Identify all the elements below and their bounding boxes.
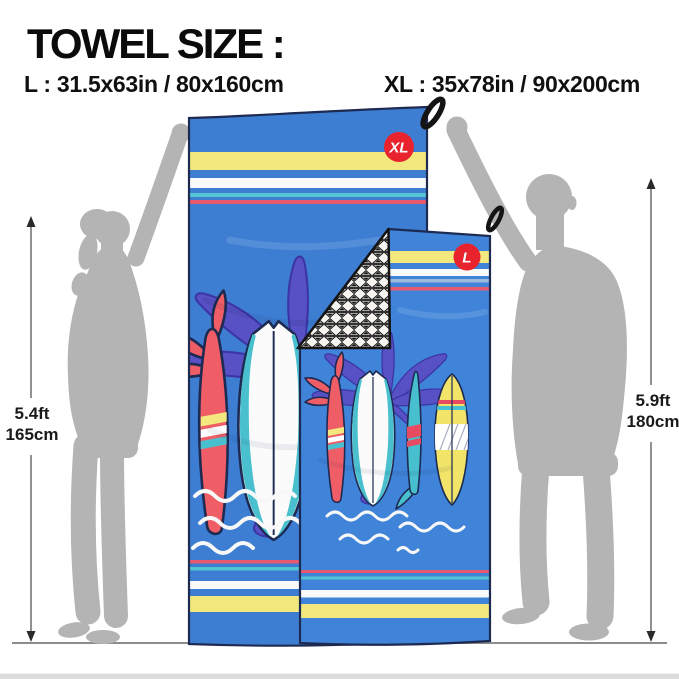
towel-size-infographic: TOWEL SIZE : L : 31.5x63in / 80x160cm XL… — [0, 0, 679, 679]
badge-xl: XL — [384, 132, 414, 162]
badge-l: L — [454, 244, 481, 271]
hanging-clip-icon-xl — [420, 97, 447, 130]
badge-l-label: L — [462, 250, 471, 267]
badge-xl-label: XL — [388, 140, 408, 157]
height-arrow-left — [27, 216, 36, 642]
bottom-strip — [0, 674, 679, 679]
female-silhouette — [57, 124, 190, 645]
infographic-canvas: XL L — [0, 0, 679, 679]
female-foot — [86, 630, 120, 644]
height-arrow-right — [647, 178, 656, 642]
male-torso — [512, 246, 627, 466]
male-head — [526, 174, 572, 220]
female-hand — [172, 124, 191, 143]
male-foot — [569, 624, 609, 641]
female-raised-arm — [136, 137, 179, 258]
male-hand — [447, 117, 468, 138]
